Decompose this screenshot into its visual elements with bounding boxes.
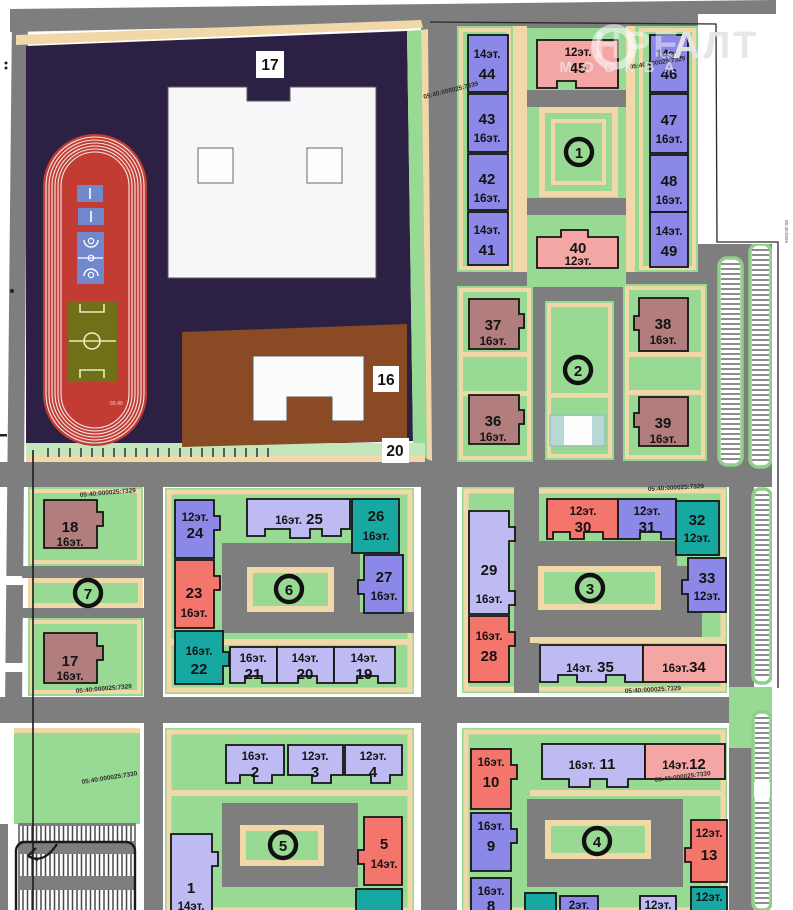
svg-text:17: 17 <box>261 57 278 74</box>
svg-text:16эт.: 16эт. <box>474 133 501 145</box>
svg-text:23: 23 <box>186 585 203 602</box>
svg-text:31: 31 <box>639 519 656 536</box>
svg-text:12эт.: 12эт. <box>360 751 387 763</box>
svg-text:41: 41 <box>479 242 496 259</box>
svg-text:8: 8 <box>487 898 495 910</box>
svg-text:19: 19 <box>356 666 373 683</box>
svg-text:16эт.: 16эт. <box>242 751 269 763</box>
svg-text:12эт.: 12эт. <box>645 900 672 910</box>
svg-text:43: 43 <box>479 111 496 128</box>
svg-text:16эт.: 16эт. <box>57 537 84 549</box>
svg-text:16эт.: 16эт. <box>181 608 208 620</box>
svg-text:24: 24 <box>187 525 204 542</box>
svg-text:14эт.: 14эт. <box>474 225 501 237</box>
svg-text:12эт.: 12эт. <box>182 512 209 524</box>
svg-text:АЛТ: АЛТ <box>673 25 760 67</box>
svg-text:12эт.: 12эт. <box>634 506 661 518</box>
svg-text:3: 3 <box>311 764 319 781</box>
svg-text:1: 1 <box>187 880 195 897</box>
svg-text:16эт.: 16эт. <box>474 193 501 205</box>
svg-text:12эт.: 12эт. <box>696 828 723 840</box>
svg-text:18: 18 <box>62 519 79 536</box>
svg-text:14эт.: 14эт. <box>292 653 319 665</box>
svg-text:28: 28 <box>481 648 498 665</box>
svg-text:39: 39 <box>655 415 672 432</box>
svg-text:16эт.: 16эт. <box>476 631 503 643</box>
svg-text:33: 33 <box>699 570 716 587</box>
svg-text:5: 5 <box>380 836 388 853</box>
svg-text:14эт.: 14эт. <box>351 653 378 665</box>
svg-text:2эт.: 2эт. <box>569 900 589 910</box>
svg-text:26: 26 <box>368 508 385 525</box>
svg-text:16эт.: 16эт. <box>650 434 677 446</box>
svg-text:2: 2 <box>251 764 259 781</box>
svg-text:10: 10 <box>483 774 500 791</box>
svg-text:16эт.: 16эт. <box>476 594 503 606</box>
svg-text:20: 20 <box>297 666 314 683</box>
svg-text:1: 1 <box>575 145 583 162</box>
svg-text:16эт.: 16эт. <box>240 653 267 665</box>
svg-text:12эт.: 12эт. <box>684 533 711 545</box>
svg-text:30: 30 <box>575 519 592 536</box>
svg-text:44: 44 <box>479 66 496 83</box>
svg-text:48: 48 <box>661 173 678 190</box>
svg-text:7: 7 <box>84 586 92 603</box>
svg-text:5: 5 <box>279 838 287 855</box>
svg-text:16эт.: 16эт. <box>57 671 84 683</box>
svg-text:16эт.: 16эт. <box>478 821 505 833</box>
svg-text:16эт.: 16эт. <box>656 195 683 207</box>
svg-text:20: 20 <box>386 443 403 460</box>
svg-text:32: 32 <box>689 512 706 529</box>
svg-text:27: 27 <box>376 569 393 586</box>
svg-text:13: 13 <box>701 847 718 864</box>
svg-text:16: 16 <box>377 372 395 389</box>
svg-text:36: 36 <box>485 413 502 430</box>
svg-text:12эт.: 12эт. <box>565 256 592 268</box>
svg-text:16эт.: 16эт. <box>480 336 507 348</box>
svg-text:12эт.: 12эт. <box>565 47 592 59</box>
svg-text:05:40:0025: 05:40:0025 <box>784 220 789 244</box>
svg-text:42: 42 <box>479 171 496 188</box>
svg-text:3: 3 <box>586 581 594 598</box>
svg-text:16эт.: 16эт. <box>650 335 677 347</box>
svg-text:2: 2 <box>574 363 582 380</box>
svg-text:16эт.: 16эт. <box>656 134 683 146</box>
svg-text:49: 49 <box>661 243 678 260</box>
svg-text:21: 21 <box>245 666 262 683</box>
svg-text:16эт.: 16эт. <box>478 757 505 769</box>
svg-text:12эт.: 12эт. <box>570 506 597 518</box>
svg-text:9: 9 <box>487 838 495 855</box>
svg-text:37: 37 <box>485 317 502 334</box>
svg-text:МОСКВА: МОСКВА <box>559 59 684 76</box>
svg-text:16эт.: 16эт. <box>478 886 505 898</box>
svg-text:47: 47 <box>661 112 678 129</box>
svg-text:22: 22 <box>191 661 208 678</box>
svg-text:4: 4 <box>369 764 378 781</box>
svg-text:12эт.: 12эт. <box>694 591 721 603</box>
svg-text:6: 6 <box>285 582 293 599</box>
svg-text:14эт.: 14эт. <box>656 226 683 238</box>
svg-text:14эт.: 14эт. <box>178 901 205 910</box>
svg-text:12эт.: 12эт. <box>696 892 723 904</box>
svg-text:29: 29 <box>481 562 498 579</box>
svg-text:40: 40 <box>570 240 587 257</box>
svg-text:16эт.: 16эт. <box>186 646 213 658</box>
svg-text:16эт.: 16эт. <box>363 531 390 543</box>
svg-text:4: 4 <box>593 834 602 851</box>
svg-text:17: 17 <box>62 653 79 670</box>
svg-text:38: 38 <box>655 316 672 333</box>
svg-text:16эт.: 16эт. <box>480 432 507 444</box>
svg-text:14эт.: 14эт. <box>371 859 398 871</box>
svg-text:14эт.: 14эт. <box>474 49 501 61</box>
svg-text:16эт.: 16эт. <box>371 591 398 603</box>
svg-text:05:40: 05:40 <box>110 401 123 407</box>
svg-text:12эт.: 12эт. <box>302 751 329 763</box>
